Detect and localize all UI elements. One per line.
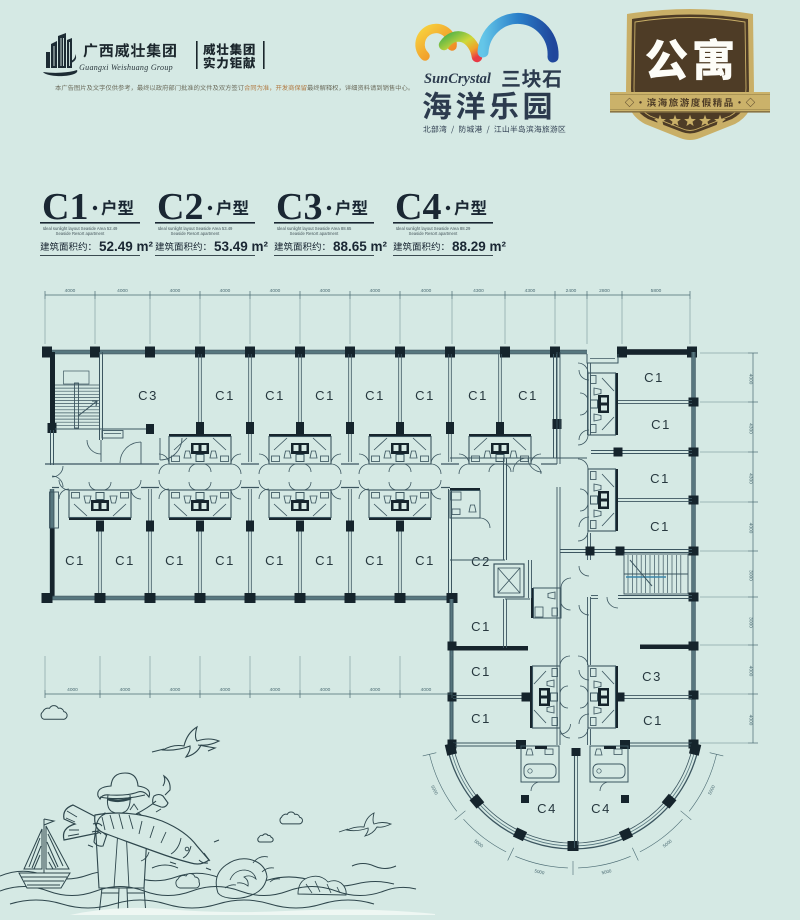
svg-text:4300: 4300	[748, 473, 754, 484]
svg-text:Seaside Resort apartment: Seaside Resort apartment	[171, 231, 220, 236]
svg-text:53.49 m²: 53.49 m²	[214, 239, 269, 254]
svg-text:4000: 4000	[748, 374, 754, 385]
svg-text:C1: C1	[518, 388, 538, 403]
svg-text:4000: 4000	[748, 523, 754, 534]
svg-text:4000: 4000	[421, 687, 432, 693]
svg-text:C1: C1	[315, 553, 335, 568]
svg-text:C1: C1	[471, 711, 491, 726]
svg-text:88.29 m²: 88.29 m²	[452, 239, 507, 254]
svg-text:C3: C3	[138, 388, 158, 403]
svg-text:4000: 4000	[320, 687, 331, 693]
svg-text:C4: C4	[591, 801, 611, 816]
svg-text:C1: C1	[65, 553, 85, 568]
svg-text:4000: 4000	[270, 288, 281, 294]
svg-text:C1: C1	[365, 388, 385, 403]
svg-text:C1: C1	[215, 388, 235, 403]
svg-text:3000: 3000	[748, 617, 754, 628]
svg-text:C1: C1	[315, 388, 335, 403]
svg-text:Seaside Resort apartment: Seaside Resort apartment	[290, 231, 339, 236]
svg-text:C1: C1	[215, 553, 235, 568]
svg-text:C1: C1	[415, 388, 435, 403]
svg-text:C1: C1	[115, 553, 135, 568]
svg-text:4000: 4000	[270, 687, 281, 693]
svg-text:4000: 4000	[170, 288, 181, 294]
svg-text:4000: 4000	[370, 687, 381, 693]
svg-text:C1: C1	[265, 553, 285, 568]
svg-text:2800: 2800	[599, 288, 610, 294]
svg-text:C1: C1	[471, 664, 491, 679]
svg-text:Seaside Resort apartment: Seaside Resort apartment	[409, 231, 458, 236]
svg-text:3000: 3000	[748, 570, 754, 581]
svg-text:4000: 4000	[65, 288, 76, 294]
svg-text:C1: C1	[643, 713, 663, 728]
svg-text:4000: 4000	[220, 687, 231, 693]
svg-text:C1: C1	[650, 519, 670, 534]
svg-text:4000: 4000	[370, 288, 381, 294]
svg-text:5800: 5800	[651, 288, 662, 294]
svg-text:C1: C1	[365, 553, 385, 568]
svg-text:C1: C1	[468, 388, 488, 403]
svg-text:4000: 4000	[120, 687, 131, 693]
svg-text:C1: C1	[651, 417, 671, 432]
svg-text:Seaside Resort apartment: Seaside Resort apartment	[56, 231, 105, 236]
svg-text:4000: 4000	[220, 288, 231, 294]
svg-text:C1: C1	[415, 553, 435, 568]
svg-text:C4: C4	[395, 186, 441, 228]
svg-text:C1: C1	[265, 388, 285, 403]
svg-text:C3: C3	[276, 186, 322, 228]
svg-text:4000: 4000	[170, 687, 181, 693]
svg-text:4300: 4300	[748, 423, 754, 434]
svg-text:4000: 4000	[748, 715, 754, 726]
svg-text:C3: C3	[642, 669, 662, 684]
svg-text:2400: 2400	[566, 288, 577, 294]
svg-text:4300: 4300	[525, 288, 536, 294]
svg-text:C1: C1	[42, 186, 88, 228]
svg-text:4000: 4000	[67, 687, 78, 693]
svg-text:C1: C1	[471, 619, 491, 634]
svg-text:C2: C2	[471, 554, 491, 569]
svg-text:C1: C1	[650, 471, 670, 486]
svg-text:4000: 4000	[748, 666, 754, 677]
svg-text:C1: C1	[165, 553, 185, 568]
svg-text:88.65 m²: 88.65 m²	[333, 239, 388, 254]
svg-text:SunCrystal: SunCrystal	[424, 71, 491, 87]
svg-text:Guangxi Weishuang Group: Guangxi Weishuang Group	[79, 63, 173, 72]
svg-text:C1: C1	[644, 370, 664, 385]
svg-text:4000: 4000	[320, 288, 331, 294]
svg-text:52.49 m²: 52.49 m²	[99, 239, 154, 254]
svg-text:4300: 4300	[473, 288, 484, 294]
svg-text:C4: C4	[537, 801, 557, 816]
svg-text:C2: C2	[157, 186, 203, 228]
svg-text:4000: 4000	[117, 288, 128, 294]
svg-text:4000: 4000	[421, 288, 432, 294]
